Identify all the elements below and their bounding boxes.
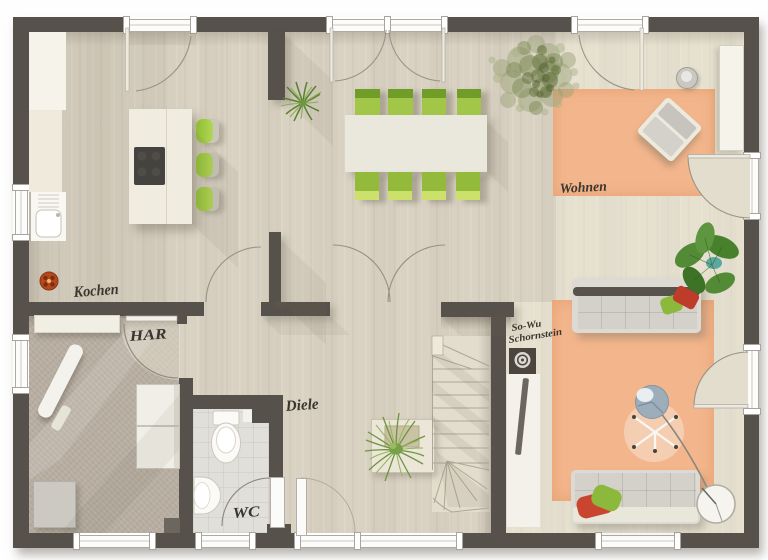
svg-text:WC: WC (232, 504, 261, 522)
svg-text:Wohnen: Wohnen (559, 180, 607, 197)
svg-text:Kochen: Kochen (72, 281, 119, 301)
svg-text:Diele: Diele (284, 396, 319, 415)
svg-text:HAR: HAR (128, 326, 167, 345)
